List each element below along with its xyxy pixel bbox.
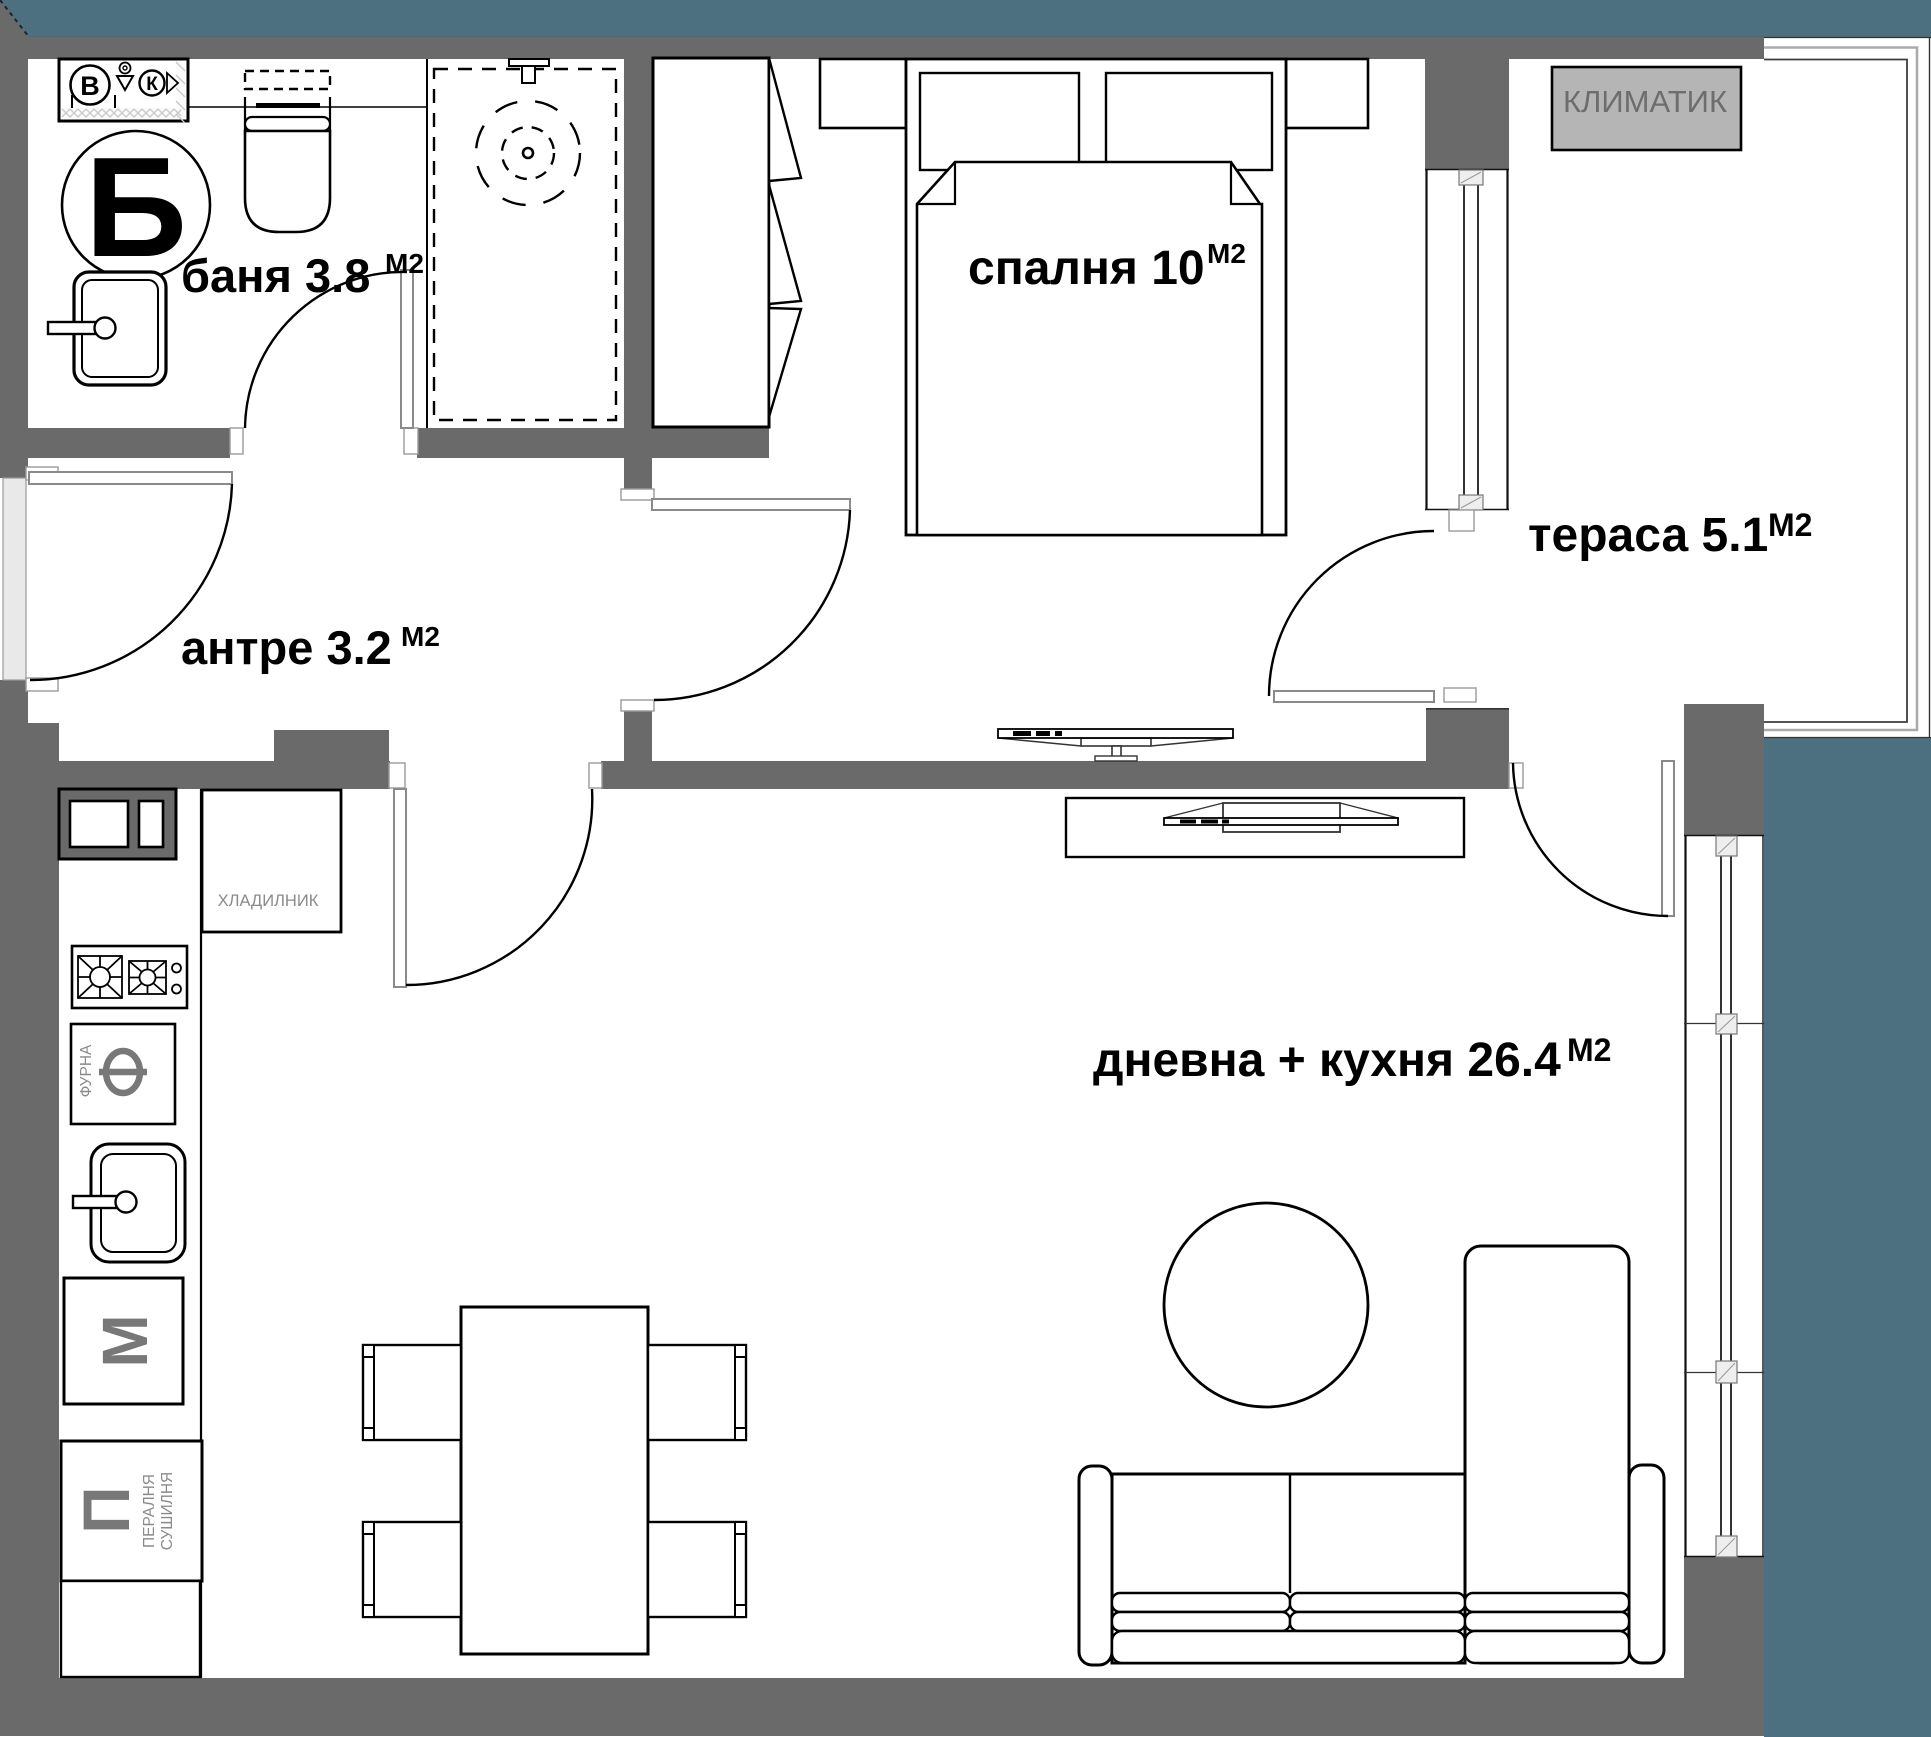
svg-text:М2: М2 [1768, 507, 1812, 543]
svg-text:тераса 5.1: тераса 5.1 [1528, 509, 1768, 562]
svg-text:Б: Б [85, 128, 187, 287]
svg-text:М2: М2 [1567, 1032, 1611, 1068]
svg-text:ХЛАДИЛНИК: ХЛАДИЛНИК [218, 892, 319, 910]
svg-text:К: К [146, 74, 158, 95]
svg-text:М: М [89, 1314, 161, 1367]
svg-text:спалня 10: спалня 10 [968, 242, 1205, 295]
svg-text:М2: М2 [401, 621, 440, 652]
svg-text:М2: М2 [1207, 238, 1246, 269]
svg-text:дневна + кухня 26.4: дневна + кухня 26.4 [1093, 1034, 1561, 1087]
svg-text:ФУРНА: ФУРНА [78, 1044, 95, 1097]
svg-text:СУШИЛНЯ: СУШИЛНЯ [159, 1472, 176, 1550]
svg-text:антре 3.2: антре 3.2 [181, 621, 392, 674]
svg-text:В: В [80, 71, 100, 101]
svg-text:П: П [69, 1486, 143, 1533]
svg-text:М2: М2 [385, 248, 424, 279]
svg-text:КЛИМАТИК: КЛИМАТИК [1563, 84, 1727, 119]
svg-text:ПЕРАЛНЯ: ПЕРАЛНЯ [141, 1474, 158, 1548]
svg-text:баня 3.8: баня 3.8 [181, 249, 370, 302]
